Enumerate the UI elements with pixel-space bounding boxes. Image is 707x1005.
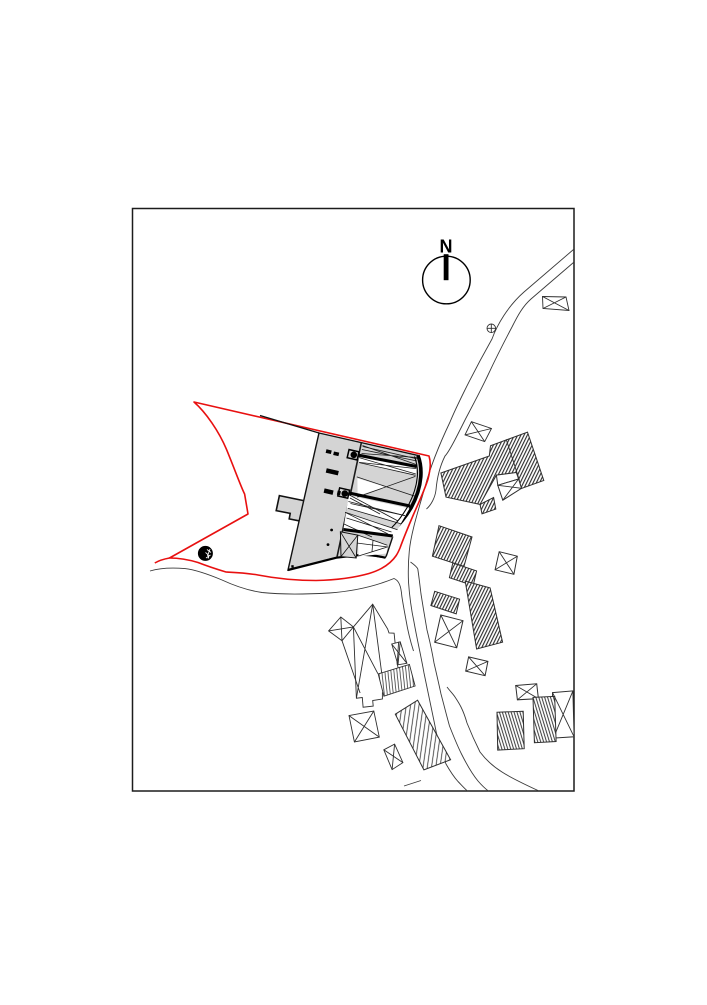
svg-text:N: N — [440, 237, 453, 257]
